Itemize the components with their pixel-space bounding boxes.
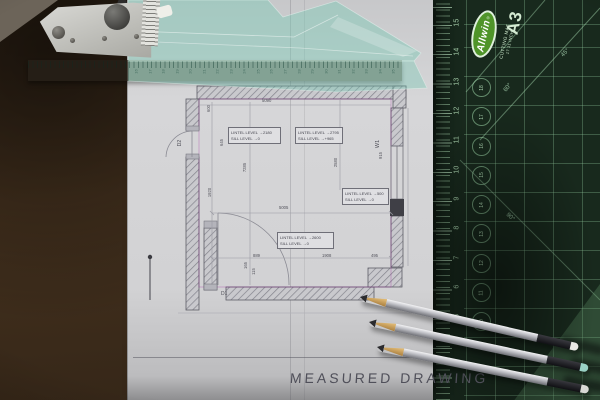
dim-bottom-3: 495 <box>371 253 378 258</box>
title-block-line <box>133 357 433 358</box>
ruler-number: 18 <box>161 69 166 73</box>
dim-right-vertical: 2580 <box>333 158 338 167</box>
pencil-graphite-tip <box>368 318 377 327</box>
ruler-number: 32 <box>350 69 355 73</box>
label-w1: W1 <box>375 140 381 148</box>
dim-top-width: 5090 <box>262 98 271 103</box>
tool-pointer-tab <box>156 4 173 19</box>
pencil-graphite-tip <box>359 293 368 302</box>
ruler-number: 19 <box>174 69 179 73</box>
protractor-head-tool <box>36 0 176 62</box>
lintel-box-1-line1: LINTEL LEVEL →2180 <box>231 130 278 136</box>
ruler-number: 33 <box>364 69 369 73</box>
dim-left-upper: 600 <box>206 105 211 112</box>
tool-rivet <box>52 26 65 39</box>
lintel-box-3-line1: LINTEL LEVEL →500 <box>345 191 386 197</box>
ruler-number: 31 <box>337 69 342 73</box>
ruler-number: 26 <box>269 69 274 73</box>
dim-left-lower: 1920 <box>207 188 212 197</box>
ruler-number: 29 <box>310 69 315 73</box>
lintel-box-1: LINTEL LEVEL →2180 SILL LEVEL →0 <box>228 127 281 144</box>
label-d1: D1 <box>221 291 227 297</box>
ruler-number: 17 <box>147 69 152 73</box>
ruler-number: 34 <box>378 69 383 73</box>
drafting-table-photo: 15141312111098765 18 17 16 15 14 13 12 1… <box>0 0 600 400</box>
ruler-number: 23 <box>229 69 234 73</box>
ruler-numbers: 1617181920212223242526272829303132333435 <box>134 69 396 74</box>
dim-bottom-1: 889 <box>253 253 260 258</box>
scale-ruler: 1617181920212223242526272829303132333435 <box>28 60 402 81</box>
lintel-box-1-line2: SILL LEVEL →0 <box>231 136 278 142</box>
lintel-box-4-line2: SILL LEVEL →0 <box>280 241 331 247</box>
ruler-number: 25 <box>256 69 261 73</box>
lintel-box-3: LINTEL LEVEL →500 SILL LEVEL →0 <box>342 188 389 205</box>
ruler-number: 21 <box>201 69 206 73</box>
lintel-box-4: LINTEL LEVEL →2600 SILL LEVEL →0 <box>277 232 334 249</box>
tool-rivet <box>134 34 139 39</box>
dim-left-mid: 645 <box>219 139 224 146</box>
ruler-number: 27 <box>283 69 288 73</box>
ruler-number: 16 <box>134 69 139 73</box>
dim-interior-height: 7285 <box>242 163 247 172</box>
dim-interior-width: 5005 <box>279 205 288 210</box>
ruler-number: 28 <box>296 69 301 73</box>
ruler-number: 35 <box>391 69 396 73</box>
ruler-number: 30 <box>323 69 328 73</box>
label-d2: D2 <box>177 140 183 146</box>
lintel-box-2-line1: LINTEL LEVEL →2795 <box>298 130 340 136</box>
ruler-number: 24 <box>242 69 247 73</box>
ruler-number: 22 <box>215 69 220 73</box>
tool-rivet <box>70 38 75 43</box>
pencil-graphite-tip <box>376 343 384 352</box>
lintel-box-3-line2: SILL LEVEL →0 <box>345 197 386 203</box>
ruler-number: 20 <box>188 69 193 73</box>
lintel-box-2: LINTEL LEVEL →2795 SILL LEVEL →+965 <box>295 127 343 144</box>
tool-rivet <box>102 36 107 41</box>
tool-knob <box>104 4 130 30</box>
drawing-title: MEASURED DRAWING <box>289 370 489 386</box>
dim-door-b: 115 <box>251 268 256 275</box>
dim-bottom-2: 1908 <box>322 253 331 258</box>
lintel-box-2-line2: SILL LEVEL →+965 <box>298 136 340 142</box>
dim-door-a: 165 <box>243 262 248 269</box>
dim-window: 915 <box>378 152 383 159</box>
